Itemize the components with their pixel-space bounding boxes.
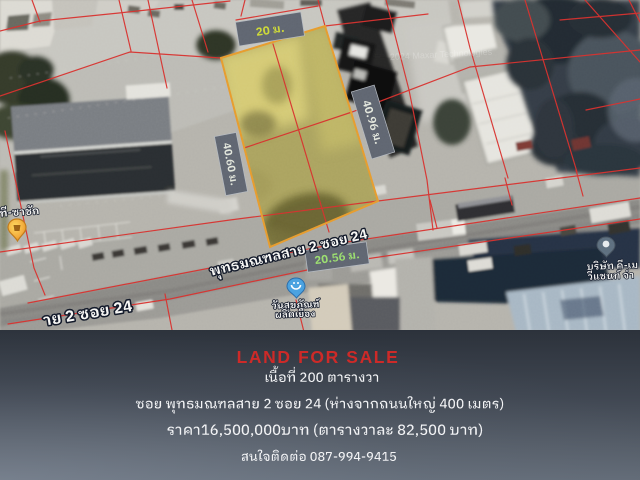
svg-text:LAND FOR SALE: LAND FOR SALE — [237, 347, 400, 367]
